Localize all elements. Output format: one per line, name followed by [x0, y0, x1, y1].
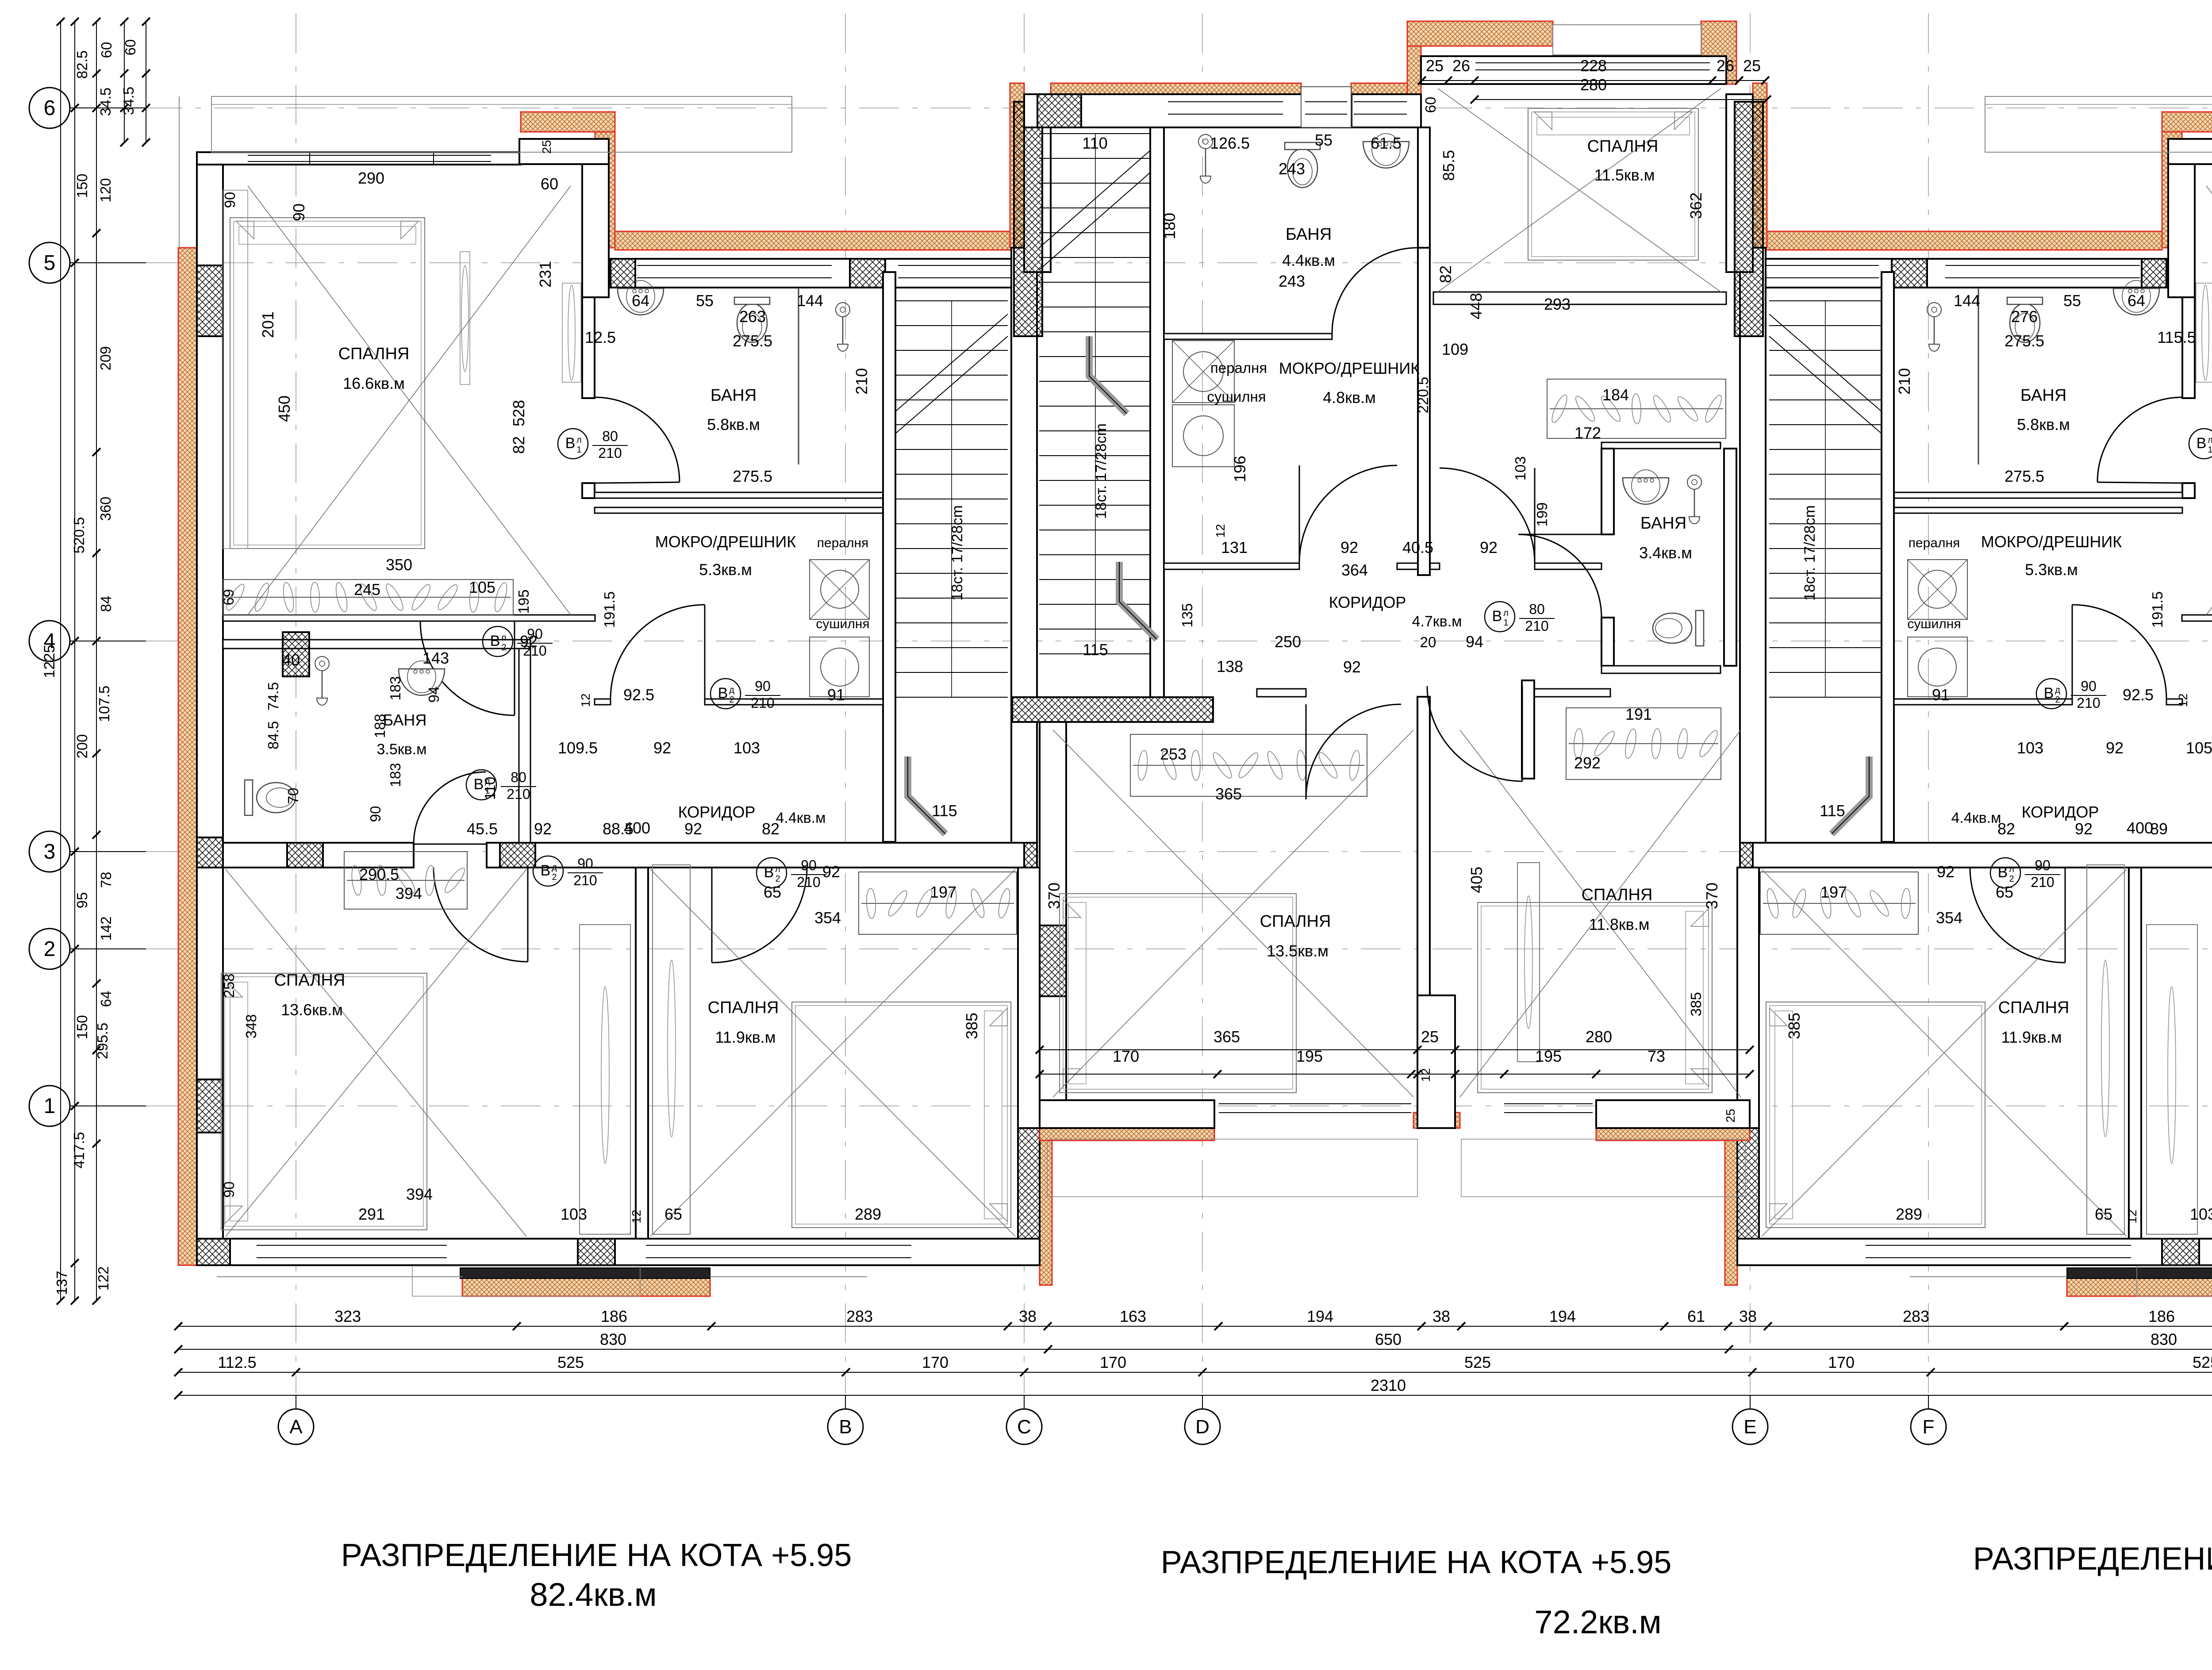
- svg-text:2: 2: [2009, 874, 2014, 884]
- svg-text:СПАЛНЯ: СПАЛНЯ: [274, 971, 346, 990]
- svg-text:12.5: 12.5: [585, 328, 616, 346]
- svg-text:520.5: 520.5: [71, 517, 87, 554]
- svg-text:365: 365: [1215, 785, 1242, 803]
- svg-text:103: 103: [733, 739, 760, 757]
- svg-text:394: 394: [396, 884, 422, 902]
- svg-text:18ст. 17/28cm: 18ст. 17/28cm: [1093, 423, 1110, 519]
- svg-text:85.5: 85.5: [1440, 150, 1458, 181]
- svg-text:131: 131: [1221, 538, 1248, 557]
- svg-text:РАЗПРЕДЕЛЕНИЕ НА КОТА +5.95: РАЗПРЕДЕЛЕНИЕ НА КОТА +5.95: [341, 1538, 852, 1573]
- svg-text:л: л: [2009, 864, 2014, 874]
- svg-text:92: 92: [1480, 538, 1498, 557]
- svg-text:В: В: [1998, 864, 2008, 881]
- svg-text:210: 210: [2031, 874, 2054, 890]
- svg-text:В: В: [2197, 435, 2207, 452]
- svg-text:74.5: 74.5: [265, 682, 281, 710]
- svg-text:90: 90: [2081, 678, 2097, 694]
- svg-text:61.5: 61.5: [1371, 134, 1402, 152]
- svg-text:82.4кв.м: 82.4кв.м: [530, 1576, 657, 1613]
- svg-text:1: 1: [1503, 618, 1508, 628]
- svg-text:258: 258: [221, 973, 237, 998]
- svg-text:105: 105: [2186, 739, 2212, 757]
- svg-text:60: 60: [1422, 97, 1439, 113]
- svg-text:25: 25: [1724, 1109, 1737, 1122]
- svg-text:64: 64: [2128, 292, 2145, 310]
- svg-text:209: 209: [97, 346, 114, 370]
- svg-text:В: В: [490, 633, 500, 649]
- svg-text:109.5: 109.5: [558, 739, 598, 757]
- svg-text:144: 144: [1954, 292, 1980, 310]
- svg-text:90: 90: [801, 857, 817, 873]
- svg-text:СПАЛНЯ: СПАЛНЯ: [1582, 886, 1653, 904]
- svg-text:144: 144: [797, 292, 823, 310]
- svg-text:90: 90: [527, 626, 543, 642]
- svg-text:БАНЯ: БАНЯ: [710, 386, 757, 405]
- svg-text:291: 291: [358, 1205, 385, 1223]
- svg-text:БАНЯ: БАНЯ: [1640, 514, 1686, 533]
- svg-text:103: 103: [561, 1205, 587, 1223]
- svg-text:360: 360: [97, 496, 114, 521]
- svg-text:л: л: [2208, 435, 2212, 445]
- svg-text:55: 55: [1315, 131, 1333, 149]
- svg-text:34.5: 34.5: [120, 87, 137, 115]
- svg-text:КОРИДОР: КОРИДОР: [678, 803, 756, 821]
- svg-text:82: 82: [1997, 820, 2015, 838]
- svg-text:280: 280: [1586, 1028, 1612, 1046]
- svg-text:1: 1: [576, 445, 581, 455]
- svg-text:72.2кв.м: 72.2кв.м: [1534, 1604, 1661, 1640]
- svg-text:283: 283: [1903, 1307, 1929, 1325]
- svg-text:92: 92: [822, 863, 840, 881]
- svg-text:92.5: 92.5: [2123, 686, 2154, 704]
- svg-text:186: 186: [2148, 1307, 2175, 1325]
- svg-text:C: C: [1017, 1416, 1031, 1438]
- svg-text:60: 60: [98, 42, 115, 58]
- svg-text:126.5: 126.5: [1210, 134, 1250, 152]
- svg-text:92.5: 92.5: [623, 686, 654, 704]
- svg-text:92: 92: [2106, 739, 2124, 757]
- svg-text:СПАЛНЯ: СПАЛНЯ: [1998, 998, 2070, 1017]
- svg-text:сушилня: сушилня: [1207, 388, 1266, 405]
- svg-text:д: д: [552, 863, 557, 872]
- svg-text:3.4кв.м: 3.4кв.м: [1639, 544, 1692, 562]
- svg-text:В: В: [764, 864, 774, 881]
- svg-text:163: 163: [1120, 1307, 1146, 1325]
- svg-text:6: 6: [44, 96, 56, 120]
- svg-text:91: 91: [1932, 686, 1950, 704]
- svg-text:293: 293: [1544, 295, 1571, 313]
- svg-text:195: 195: [515, 589, 532, 614]
- svg-text:26: 26: [1717, 57, 1734, 75]
- svg-text:11.8кв.м: 11.8кв.м: [1589, 915, 1649, 933]
- svg-text:143: 143: [422, 649, 449, 667]
- svg-text:354: 354: [814, 909, 841, 927]
- svg-text:B: B: [839, 1416, 852, 1438]
- svg-text:142: 142: [98, 916, 114, 941]
- svg-text:л: л: [576, 435, 582, 445]
- svg-text:201: 201: [259, 311, 277, 338]
- svg-text:210: 210: [598, 445, 622, 461]
- svg-text:183: 183: [387, 676, 403, 700]
- svg-text:290.5: 290.5: [359, 865, 399, 883]
- svg-text:сушилня: сушилня: [1907, 617, 1961, 631]
- svg-text:E: E: [1743, 1416, 1756, 1438]
- svg-text:191: 191: [1625, 705, 1652, 723]
- svg-text:25: 25: [540, 140, 553, 154]
- svg-text:д: д: [2055, 685, 2060, 695]
- svg-text:91: 91: [827, 686, 845, 704]
- svg-text:13.5кв.м: 13.5кв.м: [1267, 942, 1329, 960]
- svg-text:В: В: [565, 435, 576, 452]
- svg-text:4.4кв.м: 4.4кв.м: [776, 810, 826, 826]
- svg-text:90: 90: [290, 203, 308, 221]
- svg-text:525: 525: [557, 1353, 584, 1371]
- svg-text:199: 199: [1534, 502, 1550, 526]
- svg-text:94: 94: [1466, 633, 1483, 651]
- svg-text:385: 385: [1688, 992, 1704, 1016]
- svg-text:400: 400: [2127, 819, 2153, 837]
- svg-text:70: 70: [285, 788, 301, 804]
- svg-text:13.6кв.м: 13.6кв.м: [281, 1001, 343, 1019]
- svg-text:105: 105: [469, 578, 495, 596]
- svg-text:55: 55: [696, 292, 714, 310]
- svg-text:82: 82: [1436, 265, 1455, 283]
- svg-text:61: 61: [1687, 1307, 1705, 1325]
- svg-text:289: 289: [1896, 1205, 1922, 1223]
- svg-text:2: 2: [552, 872, 557, 882]
- svg-text:26: 26: [1452, 57, 1470, 75]
- svg-text:КОРИДОР: КОРИДОР: [1329, 593, 1406, 611]
- svg-text:64: 64: [98, 991, 114, 1007]
- svg-text:292: 292: [1574, 754, 1601, 772]
- svg-text:90: 90: [755, 678, 771, 694]
- svg-text:40.5: 40.5: [1402, 538, 1433, 557]
- svg-text:92: 92: [2075, 820, 2093, 838]
- svg-text:90: 90: [2035, 857, 2051, 873]
- svg-text:103: 103: [2190, 1205, 2212, 1223]
- svg-text:448: 448: [1467, 293, 1485, 319]
- svg-text:пералня: пералня: [1909, 536, 1960, 550]
- svg-text:МОКРО/ДРЕШНИК: МОКРО/ДРЕШНИК: [1279, 359, 1420, 377]
- svg-text:90: 90: [577, 856, 593, 871]
- svg-text:D: D: [1195, 1416, 1210, 1438]
- svg-text:180: 180: [1160, 213, 1179, 239]
- svg-text:В: В: [1492, 608, 1502, 625]
- svg-text:115: 115: [1083, 641, 1108, 659]
- svg-text:525: 525: [1464, 1353, 1491, 1371]
- svg-text:150: 150: [74, 1015, 90, 1039]
- svg-text:МОКРО/ДРЕШНИК: МОКРО/ДРЕШНИК: [1981, 533, 2122, 551]
- svg-text:243: 243: [1279, 272, 1305, 290]
- svg-text:275.5: 275.5: [733, 332, 772, 350]
- svg-text:5: 5: [44, 251, 56, 275]
- svg-text:д: д: [485, 776, 490, 786]
- svg-text:5.8кв.м: 5.8кв.м: [707, 415, 760, 434]
- svg-text:МОКРО/ДРЕШНИК: МОКРО/ДРЕШНИК: [655, 533, 796, 551]
- svg-text:БАНЯ: БАНЯ: [383, 711, 427, 729]
- svg-text:405: 405: [1467, 867, 1486, 893]
- svg-text:370: 370: [1703, 883, 1721, 909]
- svg-text:95: 95: [74, 892, 90, 909]
- svg-text:275.5: 275.5: [2005, 332, 2044, 350]
- svg-text:5.3кв.м: 5.3кв.м: [2025, 561, 2078, 579]
- svg-text:183: 183: [387, 763, 403, 787]
- svg-text:69: 69: [220, 589, 237, 606]
- svg-text:280: 280: [1580, 76, 1607, 94]
- svg-text:84.5: 84.5: [265, 721, 281, 749]
- svg-text:200: 200: [74, 734, 90, 758]
- svg-text:170: 170: [1828, 1353, 1855, 1371]
- svg-text:В: В: [541, 862, 551, 879]
- svg-text:323: 323: [334, 1307, 361, 1325]
- svg-text:295.5: 295.5: [94, 1023, 111, 1060]
- svg-text:170: 170: [1100, 1353, 1126, 1371]
- svg-text:25: 25: [1743, 57, 1761, 75]
- svg-text:2: 2: [501, 643, 506, 653]
- svg-text:170: 170: [922, 1353, 949, 1371]
- svg-text:60: 60: [541, 175, 558, 193]
- svg-text:38: 38: [1739, 1307, 1757, 1325]
- svg-text:370: 370: [1045, 883, 1063, 909]
- svg-text:362: 362: [1687, 192, 1705, 219]
- svg-text:385: 385: [1785, 1013, 1803, 1039]
- svg-text:210: 210: [751, 695, 774, 711]
- svg-text:РАЗПРЕДЕЛЕНИЕ НА КОТА +5.95: РАЗПРЕДЕЛЕНИЕ НА КОТА +5.95: [1973, 1541, 2212, 1577]
- svg-text:210: 210: [1525, 618, 1548, 634]
- svg-text:80: 80: [602, 428, 618, 444]
- svg-text:92: 92: [1343, 658, 1361, 676]
- svg-text:364: 364: [1341, 561, 1368, 579]
- svg-text:38: 38: [1432, 1307, 1450, 1325]
- svg-text:2: 2: [2055, 695, 2060, 705]
- svg-text:82: 82: [762, 820, 780, 838]
- svg-text:275.5: 275.5: [733, 467, 772, 485]
- svg-text:2310: 2310: [1371, 1376, 1406, 1394]
- svg-text:34.5: 34.5: [97, 88, 114, 116]
- svg-text:354: 354: [1936, 909, 1962, 927]
- svg-text:4.7кв.м: 4.7кв.м: [1412, 613, 1462, 630]
- svg-text:л: л: [775, 864, 780, 874]
- svg-text:90: 90: [222, 192, 238, 208]
- svg-text:п: п: [502, 633, 507, 643]
- svg-text:3: 3: [44, 840, 56, 864]
- svg-text:12: 12: [2176, 693, 2190, 707]
- svg-text:94: 94: [426, 687, 442, 703]
- svg-text:184: 184: [1602, 386, 1629, 404]
- svg-text:263: 263: [739, 307, 766, 326]
- svg-text:115.5: 115.5: [2157, 328, 2196, 346]
- svg-text:186: 186: [601, 1307, 627, 1325]
- svg-text:1: 1: [2208, 445, 2212, 455]
- svg-text:65: 65: [2095, 1205, 2112, 1223]
- svg-text:4: 4: [44, 630, 56, 653]
- svg-text:5.3кв.м: 5.3кв.м: [699, 561, 752, 579]
- svg-text:210: 210: [797, 874, 820, 890]
- svg-text:228: 228: [1580, 57, 1607, 75]
- svg-text:КОРИДОР: КОРИДОР: [2022, 803, 2099, 821]
- svg-text:1: 1: [44, 1094, 56, 1118]
- svg-text:38: 38: [1019, 1307, 1037, 1325]
- svg-text:пералня: пералня: [817, 536, 869, 550]
- svg-text:220.5: 220.5: [1415, 377, 1431, 414]
- svg-text:18ст. 17/28cm: 18ст. 17/28cm: [1801, 505, 1818, 601]
- svg-text:40: 40: [282, 651, 300, 669]
- svg-text:4.8кв.м: 4.8кв.м: [1323, 388, 1376, 407]
- svg-text:122: 122: [95, 1266, 111, 1290]
- svg-text:45.5: 45.5: [467, 820, 498, 838]
- svg-text:12: 12: [1214, 524, 1227, 537]
- svg-text:394: 394: [406, 1185, 433, 1203]
- svg-text:290: 290: [358, 169, 384, 187]
- svg-text:115: 115: [1820, 802, 1845, 820]
- svg-text:275.5: 275.5: [2005, 467, 2044, 485]
- svg-text:250: 250: [1275, 633, 1301, 651]
- svg-text:80: 80: [511, 769, 526, 785]
- svg-text:253: 253: [1160, 745, 1187, 763]
- svg-text:365: 365: [1214, 1028, 1240, 1046]
- svg-text:1: 1: [485, 786, 490, 796]
- svg-text:78: 78: [98, 872, 114, 888]
- svg-text:150: 150: [74, 173, 90, 198]
- svg-text:172: 172: [1575, 424, 1601, 442]
- svg-text:СПАЛНЯ: СПАЛНЯ: [708, 998, 779, 1017]
- svg-text:20: 20: [1420, 634, 1436, 650]
- svg-text:450: 450: [275, 395, 293, 422]
- svg-text:В: В: [718, 685, 728, 702]
- svg-text:525: 525: [2193, 1353, 2212, 1371]
- svg-text:135: 135: [1179, 603, 1195, 627]
- svg-text:90: 90: [367, 806, 384, 822]
- svg-text:109: 109: [1442, 340, 1468, 358]
- svg-text:60: 60: [122, 39, 138, 56]
- svg-text:82.5: 82.5: [74, 50, 90, 79]
- svg-text:55: 55: [2063, 292, 2081, 310]
- svg-text:115: 115: [932, 802, 957, 820]
- svg-text:д: д: [729, 685, 734, 695]
- svg-text:СПАЛНЯ: СПАЛНЯ: [338, 345, 410, 363]
- svg-text:В: В: [2044, 685, 2054, 702]
- svg-text:80: 80: [1529, 601, 1545, 617]
- svg-text:12: 12: [579, 693, 592, 707]
- svg-text:84: 84: [98, 596, 114, 612]
- svg-text:197: 197: [1820, 883, 1847, 901]
- svg-text:64: 64: [632, 292, 649, 310]
- svg-text:25: 25: [1426, 57, 1444, 75]
- svg-text:2: 2: [44, 937, 56, 961]
- svg-text:283: 283: [846, 1307, 873, 1325]
- svg-text:103: 103: [1512, 456, 1528, 480]
- svg-text:4.4кв.м: 4.4кв.м: [1282, 251, 1335, 269]
- svg-text:90: 90: [221, 1182, 237, 1198]
- svg-text:2: 2: [729, 695, 734, 705]
- svg-text:210: 210: [507, 786, 530, 802]
- svg-text:11.9кв.м: 11.9кв.м: [715, 1028, 776, 1046]
- svg-text:110: 110: [1082, 134, 1107, 152]
- svg-text:650: 650: [1375, 1330, 1402, 1348]
- svg-text:188: 188: [372, 714, 388, 738]
- svg-text:11.9кв.м: 11.9кв.м: [2001, 1028, 2062, 1046]
- svg-text:3.5кв.м: 3.5кв.м: [376, 741, 426, 758]
- svg-text:сушилня: сушилня: [816, 617, 869, 631]
- svg-text:191.5: 191.5: [2149, 591, 2166, 628]
- svg-text:4.4кв.м: 4.4кв.м: [1951, 810, 2001, 826]
- svg-text:103: 103: [2017, 739, 2043, 757]
- svg-text:197: 197: [930, 883, 956, 901]
- svg-text:120: 120: [97, 178, 114, 202]
- svg-text:92: 92: [1937, 863, 1955, 881]
- svg-text:82: 82: [510, 436, 528, 454]
- svg-text:25: 25: [1421, 1028, 1439, 1046]
- svg-text:231: 231: [536, 261, 554, 288]
- svg-text:11.5кв.м: 11.5кв.м: [1594, 166, 1655, 184]
- svg-text:5.8кв.м: 5.8кв.м: [2017, 415, 2070, 434]
- svg-text:830: 830: [600, 1330, 626, 1348]
- svg-text:400: 400: [624, 819, 650, 837]
- svg-text:194: 194: [1307, 1307, 1333, 1325]
- svg-text:65: 65: [664, 1205, 682, 1223]
- svg-text:107.5: 107.5: [96, 686, 112, 722]
- svg-text:210: 210: [1895, 368, 1913, 395]
- svg-text:138: 138: [1217, 657, 1243, 676]
- svg-text:191.5: 191.5: [601, 591, 618, 628]
- svg-text:210: 210: [2077, 695, 2100, 711]
- svg-text:92: 92: [1340, 538, 1358, 557]
- svg-text:289: 289: [855, 1205, 881, 1223]
- svg-text:СПАЛНЯ: СПАЛНЯ: [1587, 137, 1659, 156]
- svg-text:СПАЛНЯ: СПАЛНЯ: [1260, 912, 1331, 931]
- svg-text:210: 210: [573, 872, 597, 888]
- svg-text:210: 210: [523, 643, 546, 659]
- svg-text:276: 276: [2011, 307, 2038, 326]
- svg-text:РАЗПРЕДЕЛЕНИЕ НА КОТА +5.95: РАЗПРЕДЕЛЕНИЕ НА КОТА +5.95: [1161, 1545, 1672, 1580]
- svg-text:210: 210: [853, 368, 871, 395]
- svg-text:112.5: 112.5: [218, 1353, 256, 1371]
- svg-text:В: В: [474, 776, 484, 793]
- svg-text:348: 348: [243, 1014, 259, 1038]
- svg-text:194: 194: [1549, 1307, 1576, 1325]
- svg-text:16.6кв.м: 16.6кв.м: [343, 374, 405, 392]
- svg-text:БАНЯ: БАНЯ: [2020, 386, 2066, 405]
- svg-text:пералня: пералня: [1210, 360, 1267, 376]
- svg-text:БАНЯ: БАНЯ: [1286, 225, 1332, 244]
- svg-text:350: 350: [386, 556, 412, 574]
- svg-text:12: 12: [630, 1209, 643, 1223]
- svg-text:A: A: [289, 1416, 303, 1438]
- svg-text:18ст. 17/28cm: 18ст. 17/28cm: [949, 505, 966, 601]
- svg-text:528: 528: [510, 400, 528, 426]
- svg-text:137: 137: [54, 1271, 70, 1295]
- svg-text:92: 92: [534, 820, 552, 838]
- svg-text:196: 196: [1231, 456, 1249, 482]
- svg-text:2: 2: [775, 874, 780, 884]
- svg-text:л: л: [1503, 608, 1509, 618]
- svg-text:92: 92: [684, 820, 702, 838]
- svg-text:830: 830: [2151, 1330, 2177, 1348]
- svg-text:243: 243: [1279, 160, 1305, 178]
- svg-text:F: F: [1923, 1416, 1935, 1438]
- svg-text:245: 245: [354, 580, 380, 599]
- svg-text:417.5: 417.5: [71, 1132, 87, 1169]
- svg-text:12: 12: [2125, 1209, 2139, 1223]
- svg-text:92: 92: [653, 739, 671, 757]
- svg-text:385: 385: [963, 1013, 981, 1039]
